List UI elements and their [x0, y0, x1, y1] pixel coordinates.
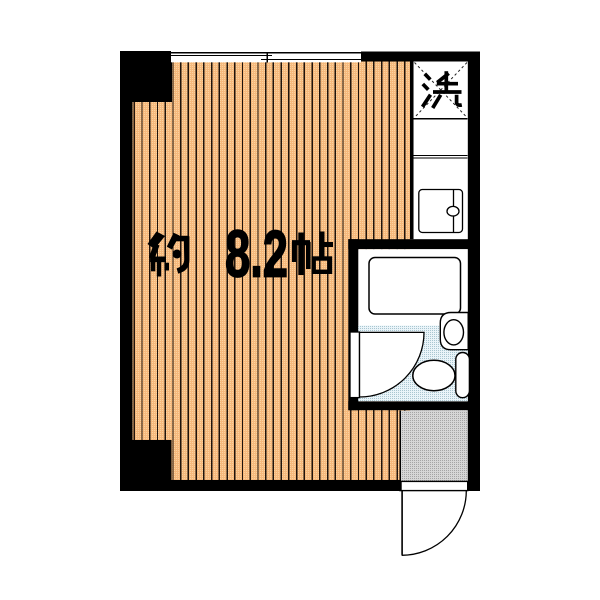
- svg-text:8.2: 8.2: [225, 216, 288, 290]
